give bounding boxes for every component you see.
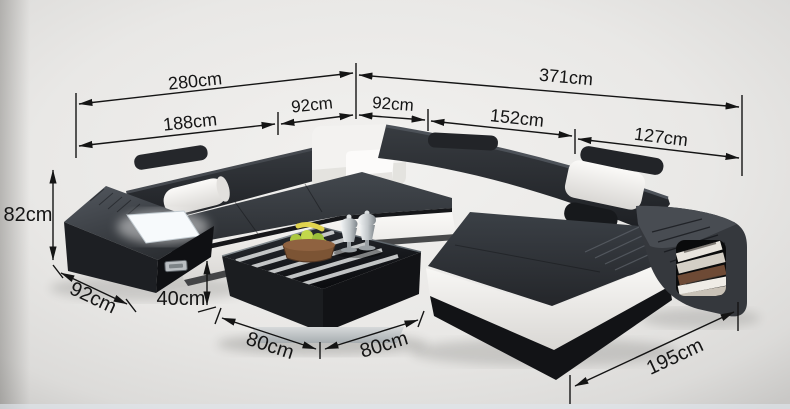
dim-label-371cm: 371cm — [538, 66, 593, 89]
dim-label-92cm-corner-left: 92cm — [290, 94, 333, 115]
drawer-handle — [165, 260, 188, 272]
dim-label-82cm: 82cm — [4, 205, 53, 225]
product-dimension-image: 280cm 371cm 188cm 92cm 92cm 152cm 127cm … — [0, 0, 790, 409]
dim-label-92cm-corner-right: 92cm — [372, 94, 415, 114]
dim-label-40cm: 40cm — [157, 289, 206, 309]
